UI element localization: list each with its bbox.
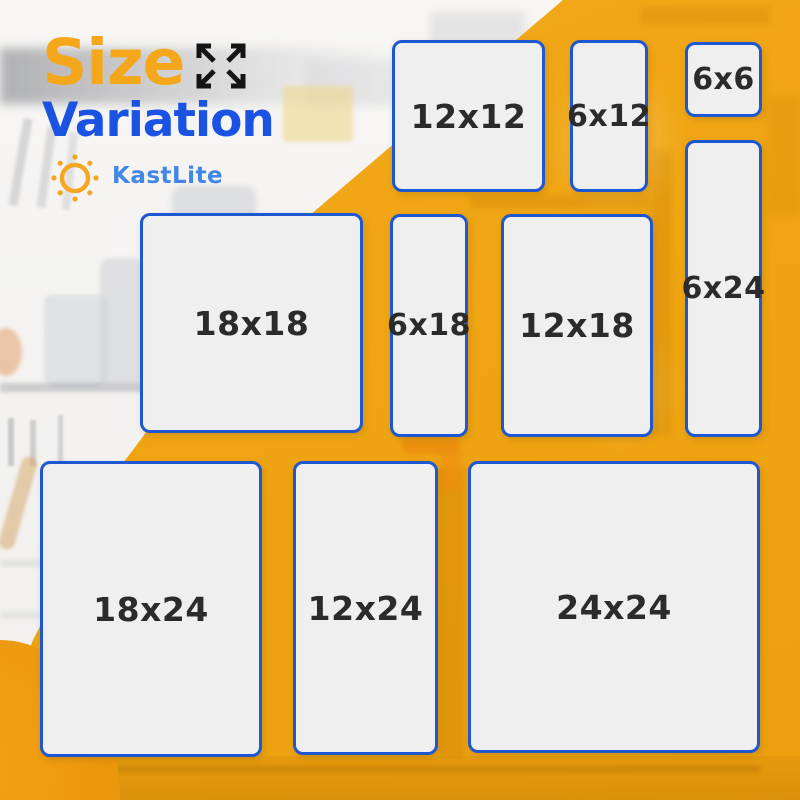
photo-bucket	[44, 295, 108, 387]
panel-label: 6x18	[387, 308, 471, 343]
size-panel-18x24: 18x24	[40, 461, 262, 757]
panel-label: 6x24	[682, 271, 766, 306]
header: Size Variation KastLite	[0, 0, 600, 230]
panel-label: 18x24	[93, 590, 209, 629]
yellow-bench-shadow	[0, 756, 800, 800]
panel-label: 12x18	[519, 306, 635, 345]
size-panel-12x18: 12x18	[501, 214, 653, 437]
yellow-bench-shadow	[60, 766, 760, 772]
size-panel-6x24: 6x24	[685, 140, 762, 437]
panel-label: 24x24	[556, 588, 672, 627]
yellow-tool-silhouette	[440, 450, 462, 492]
photo-wood-knob	[0, 328, 22, 376]
expand-arrows-icon	[192, 40, 250, 92]
size-panel-24x24: 24x24	[468, 461, 760, 753]
photo-hanging-tool	[8, 418, 14, 466]
photo-hanging-tool	[58, 415, 63, 465]
yellow-tool-silhouette	[440, 468, 464, 758]
panel-label: 12x24	[308, 589, 424, 628]
size-variation-infographic: Size Variation KastLite 12x12 6x12 6x6	[0, 0, 800, 800]
photo-cup-stack	[100, 258, 144, 384]
size-panel-12x24: 12x24	[293, 461, 438, 755]
photo-wood-handle	[0, 455, 39, 552]
yellow-tool-silhouette	[640, 6, 770, 24]
size-panel-18x18: 18x18	[140, 213, 363, 433]
size-panel-6x18: 6x18	[390, 214, 468, 437]
panel-label: 6x6	[692, 62, 755, 97]
size-panel-6x6: 6x6	[685, 42, 762, 117]
brand-name: KastLite	[112, 163, 223, 189]
title-variation: Variation	[42, 96, 274, 146]
panel-label: 18x18	[194, 304, 310, 343]
yellow-tool-silhouette	[768, 95, 800, 215]
sun-logo-icon	[47, 150, 103, 206]
